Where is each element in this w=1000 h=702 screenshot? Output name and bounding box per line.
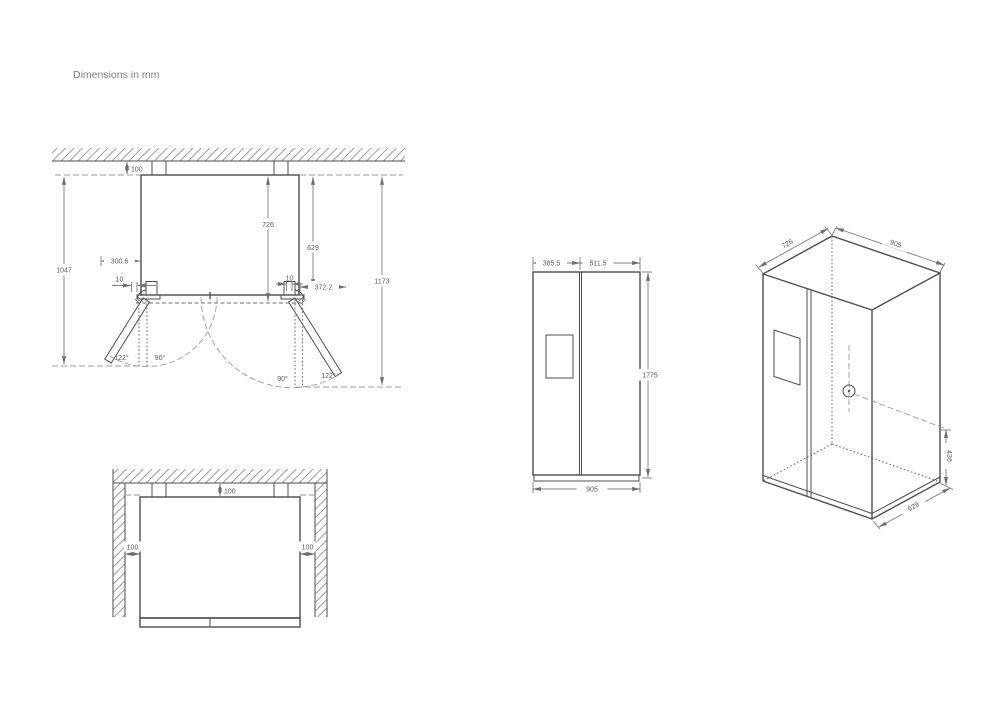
front-outline (533, 272, 640, 475)
rear-spacer (274, 161, 288, 175)
left-wall-hatch (113, 483, 125, 617)
rear-spacer (152, 161, 166, 175)
dim-label-left-door-width: 385.5 (543, 261, 561, 268)
dim-label-rear-clearance: 100 (224, 489, 236, 496)
dispenser (546, 335, 573, 378)
ext-line (832, 226, 837, 235)
dim-label-base-depth-group: 629 (899, 495, 927, 517)
hidden-bottom-edge (763, 444, 832, 481)
page-title: Dimensions in mm (73, 69, 160, 81)
water-inlet-center (848, 390, 850, 392)
angle-label-right-90: 90° (277, 375, 288, 383)
kick-plate (534, 475, 639, 481)
rear-wall-hatch (113, 469, 327, 483)
dimension-drawing-page: Dimensions in mm (0, 0, 1000, 702)
dim-label-overall-left: 1047 (56, 268, 72, 275)
water-line-dashed (854, 394, 946, 429)
wall-hatch (52, 148, 405, 161)
dim-label-overall-height: 1775 (642, 373, 658, 380)
doors-front (140, 618, 300, 627)
hinge-hatch (301, 299, 306, 304)
right-wall-hatch (315, 483, 327, 617)
dim-label-depth-group: 726 (773, 232, 801, 254)
alcove-clearance-view: 100 100 100 (113, 469, 327, 627)
dim-label-right-door-projection: 372.2 (315, 285, 333, 292)
hidden-bottom-edge (832, 444, 940, 482)
ext-line (825, 227, 833, 236)
front-view: 385.5 511.5 1775 905 (533, 257, 665, 494)
rear-spacer (274, 483, 288, 497)
angle-label-right-122: 122° (321, 372, 336, 380)
angle-label-left-90: 90° (155, 354, 166, 362)
cabinet-body (141, 175, 299, 295)
dim-label-rear-clearance: 100 (131, 167, 143, 174)
ext-line (940, 483, 953, 490)
dim-label-right-door-width: 511.5 (590, 261, 607, 268)
dim-label-cabinet-depth: 629 (307, 245, 319, 252)
right-hinge (284, 282, 295, 296)
dispenser (774, 330, 800, 385)
angle-label-left-122: 122° (114, 354, 129, 362)
dim-label-right-clearance: 100 (302, 545, 314, 552)
cabinet-body (140, 497, 300, 618)
dim-label-width-group: 905 (882, 234, 910, 253)
rear-spacer (152, 483, 166, 497)
dim-label-left-side-clearance: 300.6 (111, 259, 129, 266)
left-door-open (105, 298, 150, 363)
top-view-doors-open: 100 1047 1173 726 629 300.6 10 10 372.2 (49, 148, 406, 388)
dim-label-depth-with-doors: 726 (262, 222, 274, 229)
dim-label-water-inlet-height: 436 (945, 450, 952, 462)
dim-label-water-height-group: 436 (945, 443, 956, 469)
dim-label-overall-right: 1173 (374, 279, 389, 286)
dim-label-left-clearance: 100 (127, 545, 139, 552)
dim-label-overall-width: 905 (586, 487, 598, 494)
isometric-view: 726 905 436 629 (756, 226, 956, 529)
right-door-swing-arc (201, 297, 340, 388)
ext-line (873, 521, 880, 529)
right-door-open (289, 298, 342, 377)
technical-drawing-canvas: Dimensions in mm (0, 0, 1000, 702)
left-hinge (146, 282, 157, 296)
dim-label-left-hinge-offset: 10 (116, 277, 124, 284)
